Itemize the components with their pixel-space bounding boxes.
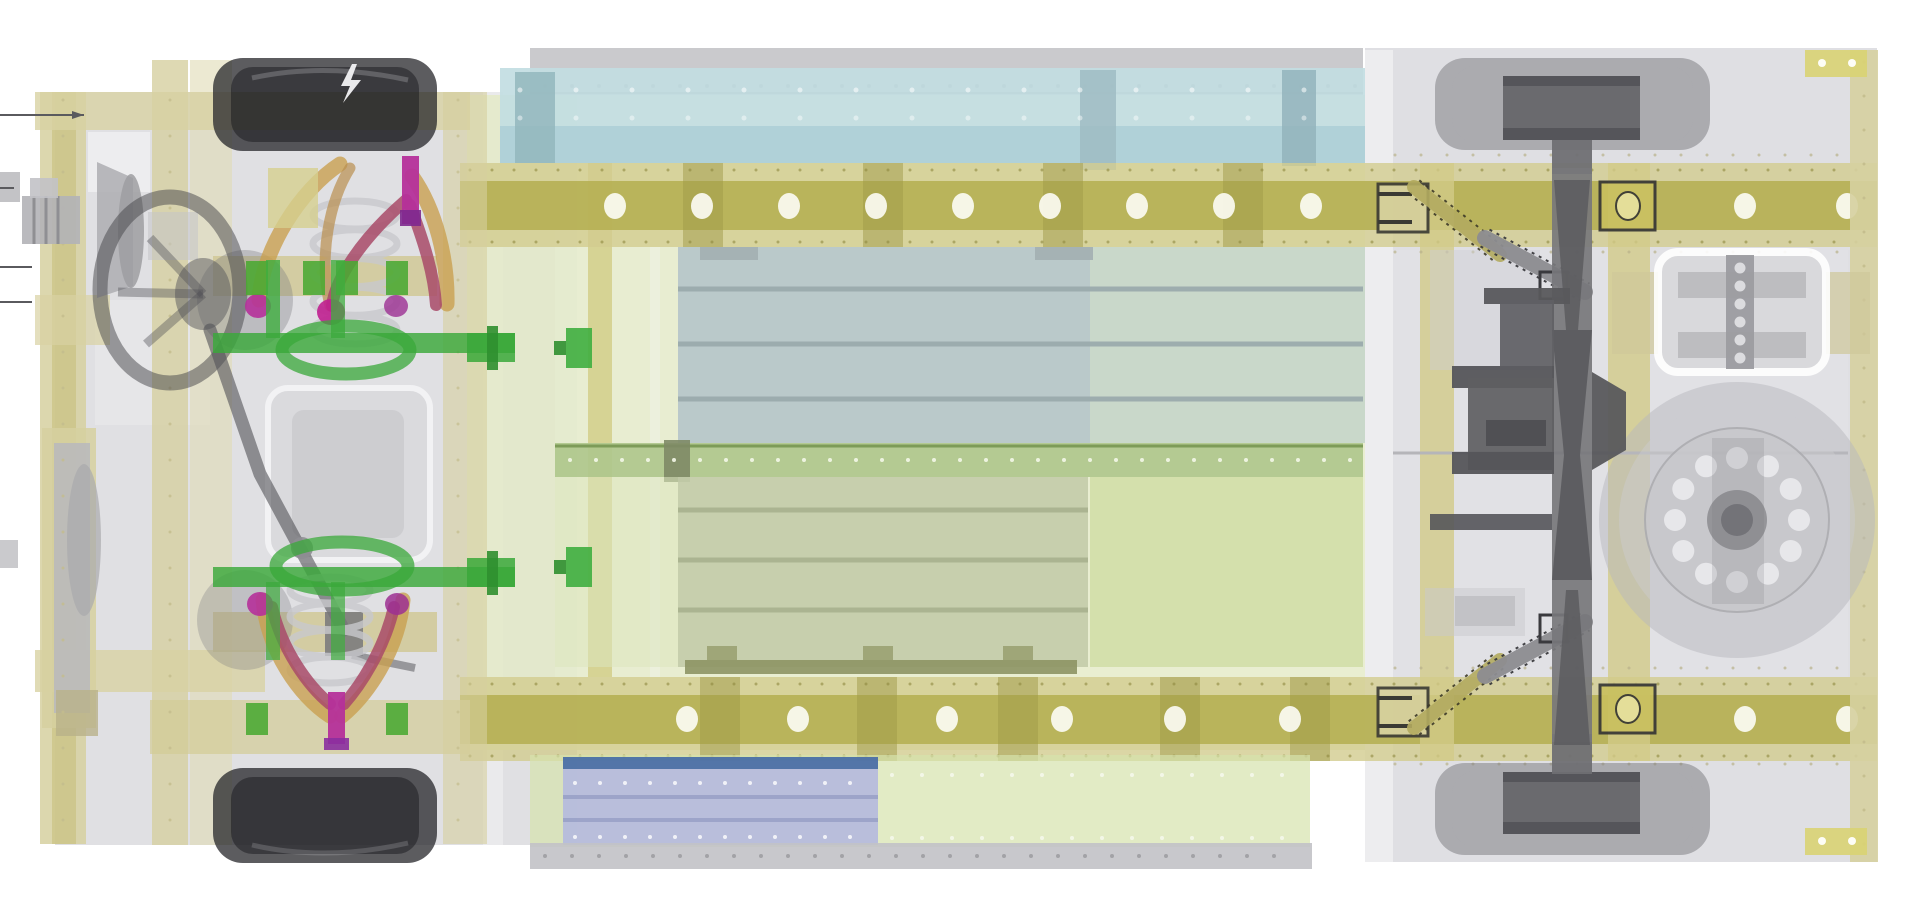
battery-sage-panel <box>678 477 1088 667</box>
cover-tab-2 <box>1035 247 1093 260</box>
green-plate-top-4 <box>386 261 408 295</box>
cad-render-canvas <box>0 0 1920 905</box>
corner-bracket-top <box>1805 50 1867 77</box>
corner-bracket-bottom <box>1805 828 1867 855</box>
diff-plate <box>1430 514 1552 530</box>
blue-module-body <box>563 769 878 845</box>
green-separator-tab <box>664 440 690 482</box>
axle-bracket-right-bottom-inner <box>1616 695 1640 723</box>
frame-rail-top-core <box>460 181 1877 230</box>
front-rivet-col-3 <box>457 99 460 822</box>
diff-stack <box>1500 300 1554 366</box>
cover-tab-1 <box>700 247 758 260</box>
mount-block-top <box>268 168 318 228</box>
ball-joint-cap-top <box>400 210 421 226</box>
blue-module-top-bar <box>563 757 878 769</box>
rail-mount-bottom-2 <box>857 677 897 761</box>
chassis-top-view-diagram <box>0 0 1920 905</box>
rail-mount-bottom-1 <box>700 677 740 761</box>
corner-bracket-top-hole-2 <box>1848 59 1856 67</box>
battery-port-stem-top <box>554 341 566 355</box>
brake-drum-top-band-1 <box>1503 76 1640 86</box>
arm-collar-bottom-right <box>385 593 409 615</box>
rail-mount-bottom-3 <box>998 677 1038 761</box>
sway-link-top-left <box>266 260 280 338</box>
sage-bar-tab-1 <box>707 646 737 660</box>
halfshaft-flange-top <box>487 326 498 370</box>
sage-bar-tab-2 <box>863 646 893 660</box>
teal-strip-right <box>1282 70 1316 166</box>
brake-drum-top-band-2 <box>1503 128 1640 140</box>
front-tire-bottom-inner <box>231 777 419 854</box>
battery-cyan-shade <box>500 126 1365 163</box>
brake-drum-bottom-band-2 <box>1503 822 1640 834</box>
ghost-muffler-inner <box>1455 596 1515 626</box>
corner-bracket-top-hole-1 <box>1818 59 1826 67</box>
sage-bar-tab-3 <box>1003 646 1033 660</box>
green-plate-top-1 <box>246 261 268 295</box>
teal-strip-mid <box>1080 70 1116 170</box>
ball-joint-cap-bottom <box>324 738 349 750</box>
green-plate-top-2 <box>303 261 325 295</box>
spare-side-box-left <box>1612 272 1658 354</box>
corner-bracket-bottom-hole-2 <box>1848 837 1856 845</box>
lower-right-green-panel <box>1090 477 1363 667</box>
green-plate-bottom-1 <box>246 703 268 735</box>
arm-collar-top-right <box>384 295 408 317</box>
corner-bracket-bottom-hole-1 <box>1818 837 1826 845</box>
green-plate-bottom-2 <box>386 703 408 735</box>
master-cylinder <box>22 196 80 244</box>
diff-detail <box>1486 420 1546 446</box>
battery-port-bottom <box>566 547 592 587</box>
mc-reservoir <box>30 178 58 198</box>
halfshaft-flange-bottom <box>487 551 498 595</box>
sage-bottom-bar <box>685 660 1077 674</box>
spare-side-box-right <box>1826 272 1870 354</box>
front-rivet-col-2 <box>169 99 172 822</box>
diff-arm-lower <box>1452 452 1554 474</box>
battery-port-top <box>566 328 592 368</box>
battery-port-stem-bottom <box>554 560 566 574</box>
engine-ghost-inner <box>292 410 404 538</box>
firewall-rail <box>443 92 487 844</box>
ball-joint-bushing-bottom <box>328 692 345 744</box>
spare-strap-shadow <box>1712 438 1764 604</box>
edge-stub-2 <box>0 540 18 568</box>
abs-unit-ghost <box>148 212 198 260</box>
radiator-fan <box>67 464 101 616</box>
axle-bracket-right-top-inner <box>1616 192 1640 220</box>
steering-spoke-3 <box>118 292 203 294</box>
sway-link-bottom-left <box>266 582 280 660</box>
